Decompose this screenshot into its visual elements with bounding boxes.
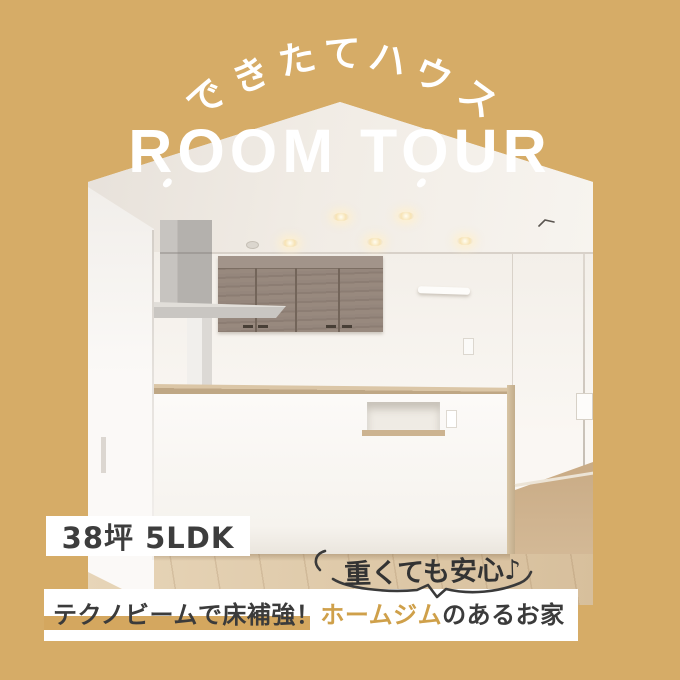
wall-outlet (101, 437, 106, 473)
ceiling-wall-junction (206, 252, 593, 254)
arc-label-char: た (272, 37, 323, 82)
downlight (367, 238, 383, 246)
wall-corner (512, 254, 513, 390)
cabinet-door-seam (338, 268, 340, 332)
ceiling-vent-mark (538, 218, 556, 228)
cabinet-handle (342, 325, 352, 328)
island-niche-sill (362, 430, 445, 436)
cabinet-door-seam (255, 268, 257, 332)
caption-highlight: ホームジム (320, 601, 442, 629)
foreground-wall-edge (152, 230, 154, 560)
caption-text: テクノビームで床補強！ホームジムのあるお家 (53, 601, 565, 630)
ceiling-sensor (246, 241, 259, 249)
page-title: ROOM TOUR (0, 121, 680, 182)
caption-pre: テクノビームで床補強！ (53, 601, 320, 629)
caption-post: のあるお家 (442, 601, 565, 629)
cabinet-door-seam (295, 268, 297, 332)
arc-label-char: ウ (405, 50, 460, 102)
downlight (457, 237, 473, 245)
downlight (282, 239, 298, 247)
wall-switch (463, 338, 474, 355)
wall-corner (583, 254, 585, 492)
range-hood-chimney (160, 220, 212, 304)
arc-label-char: ハ (363, 37, 414, 82)
arc-label-char: て (320, 35, 364, 72)
cabinet-top-frame (218, 256, 383, 269)
cabinet-handle (243, 325, 253, 328)
island-outlet (446, 410, 457, 428)
downlight (333, 213, 349, 221)
floor-area-badge: 38坪 5LDK (46, 516, 250, 556)
callout-text: 重くても安心♪ (344, 548, 522, 592)
room-tour-graphic: { "colors": { "background": "#d6ac67", "… (0, 0, 680, 680)
wall-cabinets (218, 256, 383, 332)
island-niche (367, 402, 440, 433)
range-hood-seam (160, 252, 212, 254)
cabinet-handle (326, 325, 336, 328)
cabinet-handle (258, 325, 268, 328)
downlight (398, 212, 414, 220)
intercom-panel (576, 393, 593, 420)
arc-label-char: き (223, 50, 278, 102)
